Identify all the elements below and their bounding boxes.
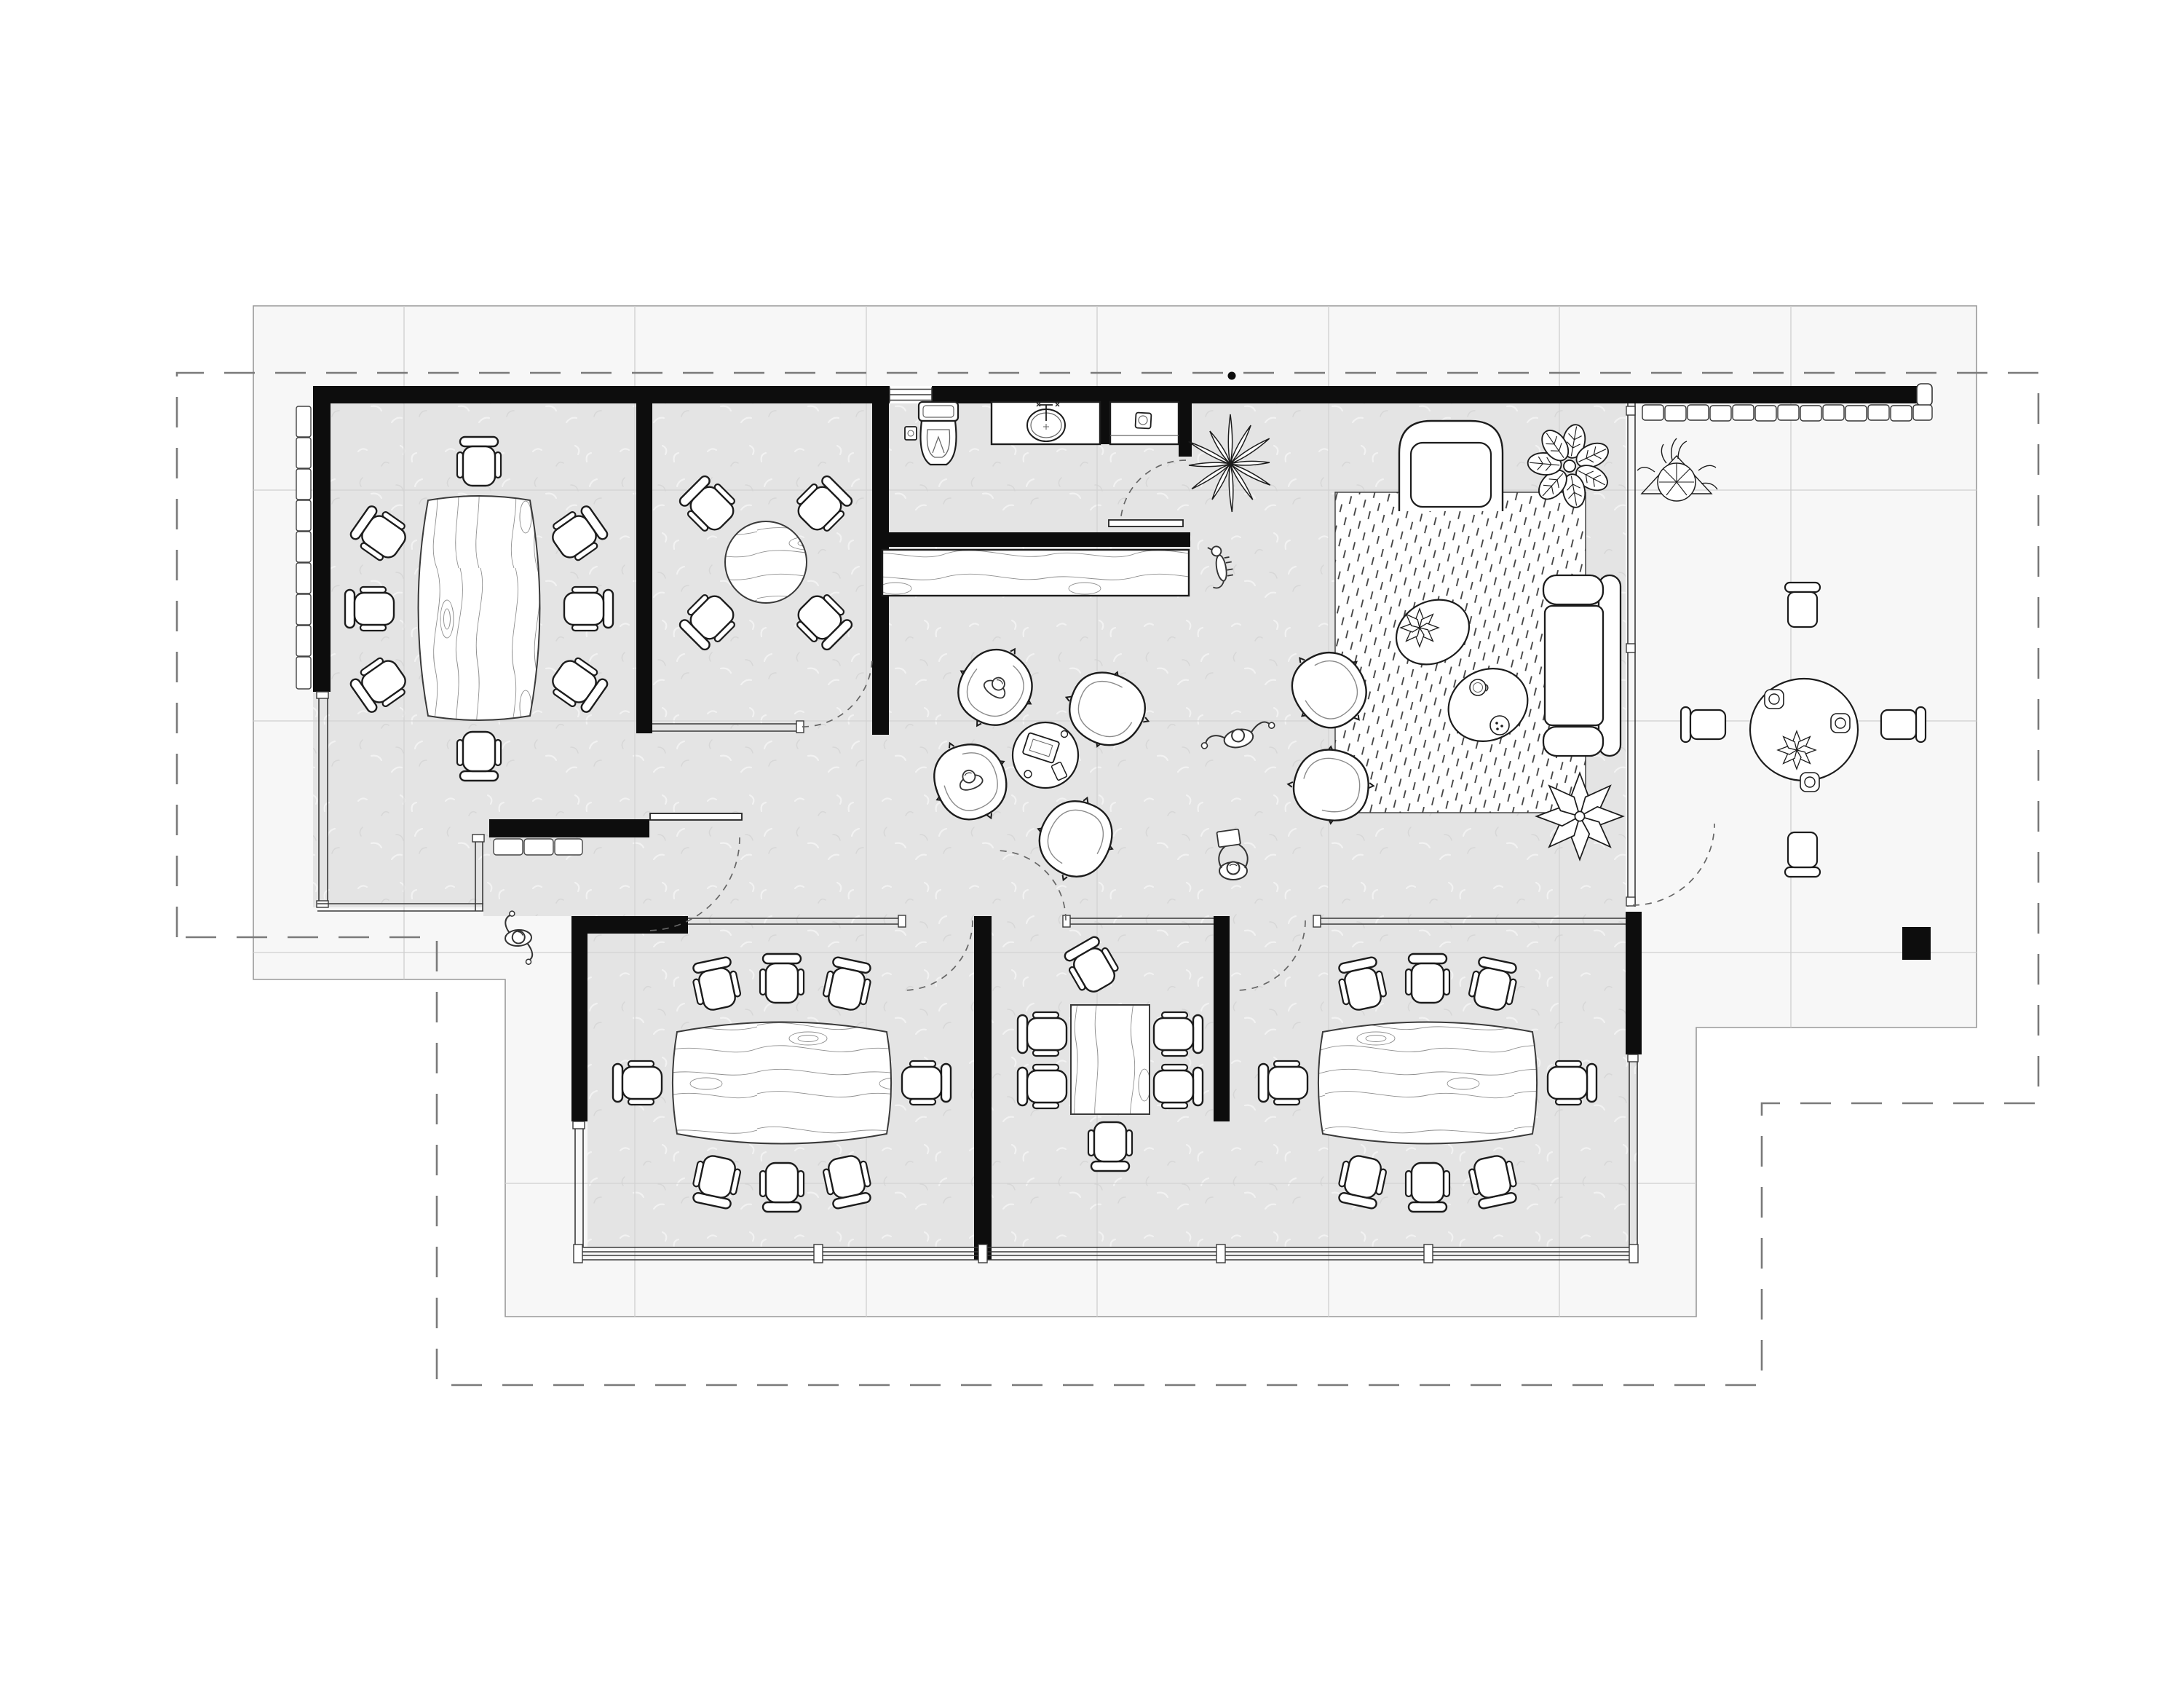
- chair: [1018, 1012, 1067, 1056]
- wall-south-rooms-2: [1214, 916, 1230, 1121]
- wall-dot-marker: [1228, 372, 1236, 380]
- west-wall: [313, 386, 331, 692]
- conference-table: [673, 1022, 891, 1144]
- chair: [902, 1061, 951, 1105]
- entry-paver-strip: [494, 839, 582, 855]
- chair: [457, 437, 501, 486]
- star-plant: [1537, 773, 1623, 860]
- patio-chair: [1881, 707, 1926, 742]
- patio-chair: [1785, 832, 1820, 877]
- cup-small: [1024, 770, 1032, 778]
- column-marker: [1902, 927, 1931, 960]
- floor-plan-drawing: [0, 0, 2184, 1688]
- west-brick-strip: [296, 406, 311, 689]
- north-wall-end-cap: [1917, 384, 1932, 406]
- north-wall: [313, 386, 1917, 403]
- wall-south-rooms-1: [974, 916, 992, 1260]
- chair: [457, 732, 501, 781]
- patio-chair: [1681, 707, 1725, 742]
- kitchen-east-wall: [1179, 386, 1192, 457]
- hall-credenza: [882, 550, 1189, 596]
- work-table: [1071, 1005, 1150, 1114]
- chair: [1088, 1122, 1132, 1171]
- chair: [1154, 1065, 1203, 1108]
- round-table: [725, 521, 807, 603]
- chair: [564, 587, 613, 631]
- armchair: [1399, 421, 1503, 511]
- southwest-room-west-wall: [571, 934, 587, 1121]
- sofa: [1543, 575, 1621, 756]
- chair: [1154, 1012, 1203, 1056]
- chair: [760, 954, 804, 1003]
- basin-counter: [992, 402, 1100, 444]
- chair: [1548, 1061, 1597, 1105]
- conference-table-west: [419, 496, 540, 720]
- east-wall-segment: [1626, 912, 1642, 1054]
- conference-table: [1318, 1022, 1537, 1144]
- floor-plan-page: { "colors": { "paper": "#ffffff", "site_…: [0, 0, 2184, 1688]
- chair: [1406, 954, 1449, 1003]
- kitchen-counter-divider: [1100, 402, 1110, 444]
- entry-door-leaf: [650, 813, 742, 820]
- chair: [1406, 1163, 1449, 1212]
- chair: [345, 587, 394, 631]
- southwest-room-north-wall: [571, 916, 688, 934]
- wall-conference-huddle: [636, 386, 652, 733]
- chair: [1018, 1065, 1067, 1108]
- patio-paver-strip: [1642, 405, 1932, 421]
- sink-counter: [1110, 402, 1179, 444]
- kitchen-south-wall: [889, 532, 1190, 547]
- chair: [613, 1061, 662, 1105]
- side-table: [1013, 722, 1078, 788]
- kitchen-door-leaf: [1109, 520, 1183, 526]
- chair: [760, 1163, 804, 1212]
- entry-wall: [489, 819, 649, 837]
- dish-on-table: [1490, 716, 1509, 735]
- window-north: [890, 387, 932, 402]
- chair: [1259, 1061, 1307, 1105]
- flush-button: [905, 427, 917, 440]
- patio-chair: [1785, 583, 1820, 627]
